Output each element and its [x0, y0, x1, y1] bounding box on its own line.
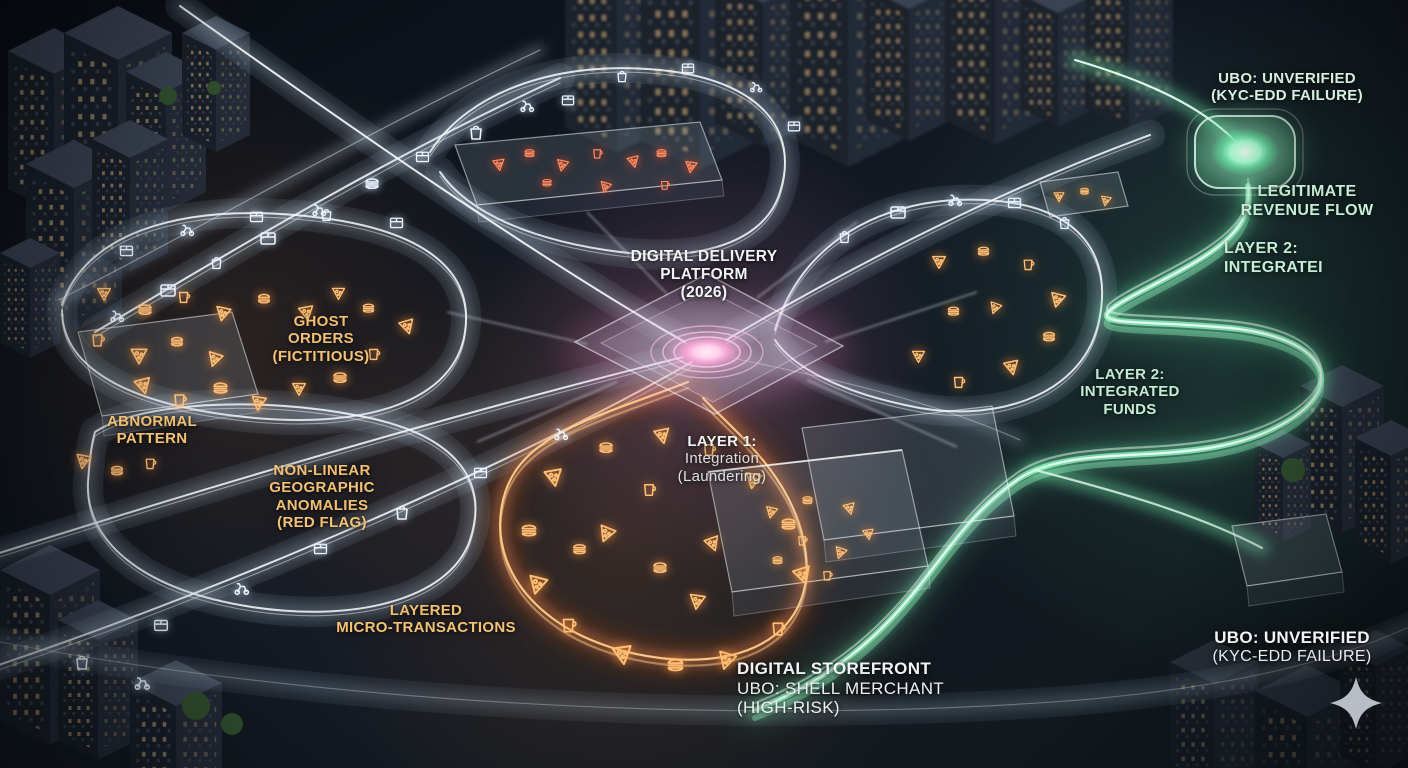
label-layer1-integration: LAYER 1: Integration (Laundering)	[678, 433, 767, 485]
label-ubo-unverified-top: UBO: UNVERIFIED (KYC-EDD FAILURE)	[1211, 70, 1363, 105]
label-digital-storefront: DIGITAL STOREFRONT UBO: SHELL MERCHANT (…	[737, 659, 944, 718]
label-legitimate-revenue-flow: LEGITIMATE REVENUE FLOW	[1241, 183, 1374, 220]
label-layer2-integrated-funds: LAYER 2: INTEGRATED FUNDS	[1080, 366, 1179, 418]
label-ghost-orders: GHOST ORDERS (FICTITIOUS)	[273, 313, 370, 365]
label-ubo-unverified-bottom: UBO: UNVERIFIED (KYC-EDD FAILURE)	[1213, 628, 1372, 666]
label-layered-micro-transactions: LAYERED MICRO-TRANSACTIONS	[336, 602, 516, 637]
label-geographic-anomalies: NON-LINEAR GEOGRAPHIC ANOMALIES (RED FLA…	[269, 462, 375, 532]
label-digital-delivery-platform: DIGITAL DELIVERY PLATFORM (2026)	[631, 248, 778, 302]
label-abnormal-pattern: ABNORMAL PATTERN	[107, 413, 197, 448]
label-layer2-integratei: LAYER 2: INTEGRATEI	[1224, 240, 1323, 277]
city-flow-illustration	[0, 0, 1408, 768]
vignette-overlay	[0, 0, 1408, 768]
scene: UBO: UNVERIFIED (KYC-EDD FAILURE) LEGITI…	[0, 0, 1408, 768]
